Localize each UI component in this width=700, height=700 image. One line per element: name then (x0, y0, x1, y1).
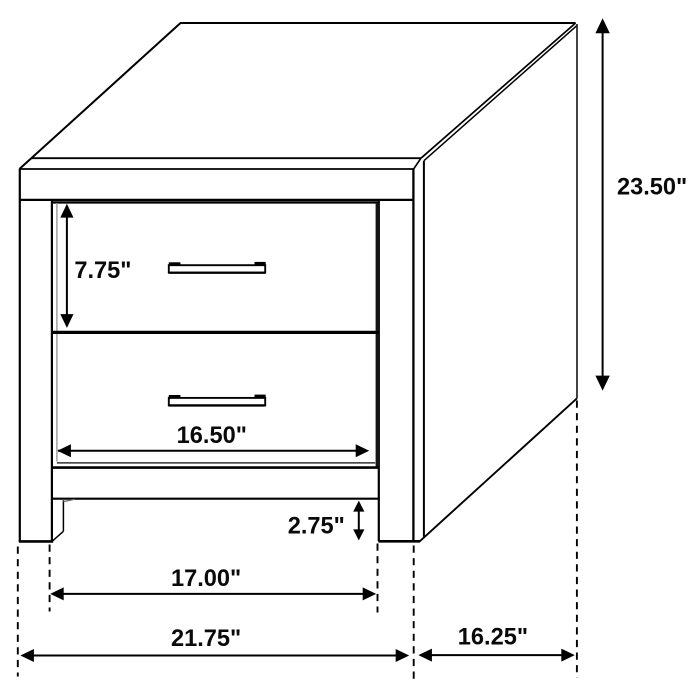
svg-text:16.50": 16.50" (177, 423, 247, 449)
svg-text:16.25": 16.25" (458, 624, 528, 650)
svg-text:23.50": 23.50" (617, 175, 687, 201)
svg-text:21.75": 21.75" (171, 626, 241, 652)
svg-text:2.75": 2.75" (288, 514, 345, 540)
svg-text:17.00": 17.00" (171, 566, 241, 592)
svg-text:7.75": 7.75" (74, 258, 131, 284)
